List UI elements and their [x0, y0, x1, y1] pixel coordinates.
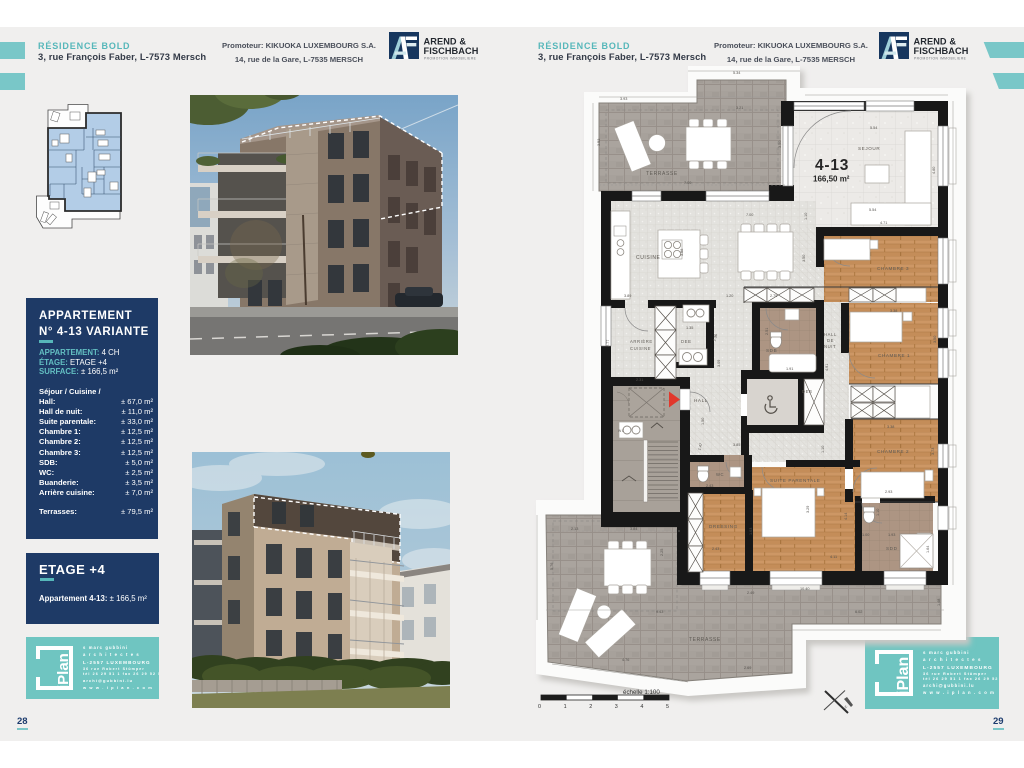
svg-text:archi@gubbini.lu: archi@gubbini.lu — [83, 678, 133, 683]
svg-text:4.11: 4.11 — [830, 555, 837, 559]
svg-text:2.69: 2.69 — [744, 666, 751, 670]
svg-text:DRESSING: DRESSING — [709, 524, 738, 529]
svg-text:1.20: 1.20 — [726, 294, 733, 298]
svg-text:1.10: 1.10 — [876, 509, 880, 516]
svg-text:1.03: 1.03 — [749, 528, 753, 535]
svg-text:3.93: 3.93 — [620, 97, 627, 101]
svg-text:4-13: 4-13 — [815, 157, 849, 174]
svg-text:CHAMBRE 2: CHAMBRE 2 — [877, 449, 909, 454]
svg-text:2: 2 — [589, 704, 592, 710]
svg-text:CHAMBRE 1: CHAMBRE 1 — [878, 353, 910, 358]
svg-text:CUISINE: CUISINE — [630, 346, 651, 351]
svg-text:FISCHBACH: FISCHBACH — [424, 46, 479, 56]
svg-text:SEJOUR: SEJOUR — [858, 146, 880, 151]
svg-text:3.84: 3.84 — [630, 527, 637, 531]
svg-text:3.85: 3.85 — [733, 443, 740, 447]
svg-text:3.09: 3.09 — [717, 360, 721, 367]
svg-text:L-2557 LUXEMBOURG: L-2557 LUXEMBOURG — [83, 660, 151, 665]
svg-text:1.64: 1.64 — [926, 546, 930, 553]
svg-text:5.54: 5.54 — [869, 208, 876, 212]
svg-text:2.77: 2.77 — [606, 340, 610, 347]
svg-text:SUITE PARENTALE: SUITE PARENTALE — [770, 478, 820, 483]
svg-text:s marc gubbini: s marc gubbini — [83, 645, 128, 650]
svg-text:10.40: 10.40 — [800, 587, 810, 591]
svg-text:5.76: 5.76 — [550, 563, 554, 570]
svg-text:tél 26 29 51 1 fax 26 29 52 52: tél 26 29 51 1 fax 26 29 52 52 — [83, 672, 159, 676]
svg-text:9.43: 9.43 — [656, 610, 663, 614]
svg-text:2.43: 2.43 — [712, 547, 719, 551]
svg-text:2.75: 2.75 — [770, 294, 777, 298]
svg-text:3.21: 3.21 — [736, 106, 743, 110]
svg-text:HALL: HALL — [824, 332, 837, 337]
svg-text:2.51: 2.51 — [765, 328, 769, 335]
svg-text:3.73: 3.73 — [931, 448, 935, 455]
svg-text:a r c h i t e c t e s: a r c h i t e c t e s — [83, 652, 140, 657]
svg-text:ARRIÈRE: ARRIÈRE — [630, 339, 653, 344]
svg-text:1: 1 — [564, 704, 567, 710]
svg-text:CHAMBRE 3: CHAMBRE 3 — [877, 266, 909, 271]
svg-text:4.76: 4.76 — [622, 658, 629, 662]
svg-text:3.50: 3.50 — [778, 141, 782, 148]
svg-text:1.00: 1.00 — [862, 533, 869, 537]
svg-text:4.60: 4.60 — [932, 167, 936, 174]
svg-text:2.43: 2.43 — [706, 484, 713, 488]
svg-text:DEB: DEB — [802, 389, 812, 394]
svg-text:WC: WC — [716, 472, 724, 477]
svg-text:36 rue Robert Stümper: 36 rue Robert Stümper — [83, 667, 145, 671]
svg-text:1.10: 1.10 — [804, 213, 808, 220]
svg-text:TERRASSE: TERRASSE — [689, 637, 721, 643]
svg-text:WC: WC — [618, 429, 625, 433]
svg-text:2.31: 2.31 — [636, 378, 643, 382]
svg-text:SDB: SDB — [766, 348, 777, 353]
svg-text:1.48: 1.48 — [937, 599, 941, 606]
svg-text:3.29: 3.29 — [806, 506, 810, 513]
svg-text:166,50 m²: 166,50 m² — [813, 175, 850, 184]
svg-text:2.93: 2.93 — [885, 490, 892, 494]
svg-text:3.89: 3.89 — [624, 294, 631, 298]
svg-text:DEB: DEB — [681, 339, 691, 344]
svg-text:4.14: 4.14 — [844, 513, 848, 520]
svg-text:1.91: 1.91 — [786, 367, 793, 371]
svg-text:FISCHBACH: FISCHBACH — [914, 46, 969, 56]
svg-text:5.54: 5.54 — [870, 126, 877, 130]
svg-text:2.25: 2.25 — [660, 549, 664, 556]
svg-text:DE: DE — [827, 338, 834, 343]
svg-text:2.49: 2.49 — [747, 591, 754, 595]
svg-text:3.88: 3.88 — [680, 249, 684, 256]
svg-text:TERRASSE: TERRASSE — [646, 171, 678, 177]
svg-text:3.38: 3.38 — [890, 309, 897, 313]
svg-text:3.38: 3.38 — [887, 425, 894, 429]
svg-text:7.00: 7.00 — [684, 181, 691, 185]
svg-text:4: 4 — [640, 704, 643, 710]
svg-text:4.71: 4.71 — [880, 221, 887, 225]
svg-text:2.13: 2.13 — [571, 527, 578, 531]
svg-text:w w w . i p l a n . c o m: w w w . i p l a n . c o m — [82, 685, 153, 690]
svg-text:7.00: 7.00 — [746, 213, 753, 217]
svg-text:SDD: SDD — [886, 546, 898, 551]
svg-text:PROMOTION IMMOBILIERE: PROMOTION IMMOBILIERE — [424, 57, 477, 61]
svg-text:1.10: 1.10 — [821, 446, 825, 453]
svg-text:0: 0 — [538, 704, 541, 710]
svg-text:1.50: 1.50 — [701, 418, 705, 425]
svg-text:3.53: 3.53 — [597, 139, 601, 146]
svg-text:3: 3 — [615, 704, 618, 710]
svg-text:HALL: HALL — [694, 398, 708, 403]
svg-text:1.35: 1.35 — [686, 326, 693, 330]
svg-text:4.91: 4.91 — [825, 364, 829, 371]
svg-text:CUISINE: CUISINE — [636, 255, 661, 261]
svg-text:NUIT: NUIT — [824, 344, 836, 349]
svg-text:5.34: 5.34 — [733, 71, 740, 75]
svg-text:iPlan: iPlan — [55, 653, 72, 689]
svg-text:3.50: 3.50 — [802, 255, 806, 262]
svg-text:5: 5 — [666, 704, 669, 710]
svg-text:6.02: 6.02 — [855, 610, 862, 614]
svg-text:3.50: 3.50 — [933, 336, 937, 343]
svg-text:1.93: 1.93 — [888, 533, 895, 537]
